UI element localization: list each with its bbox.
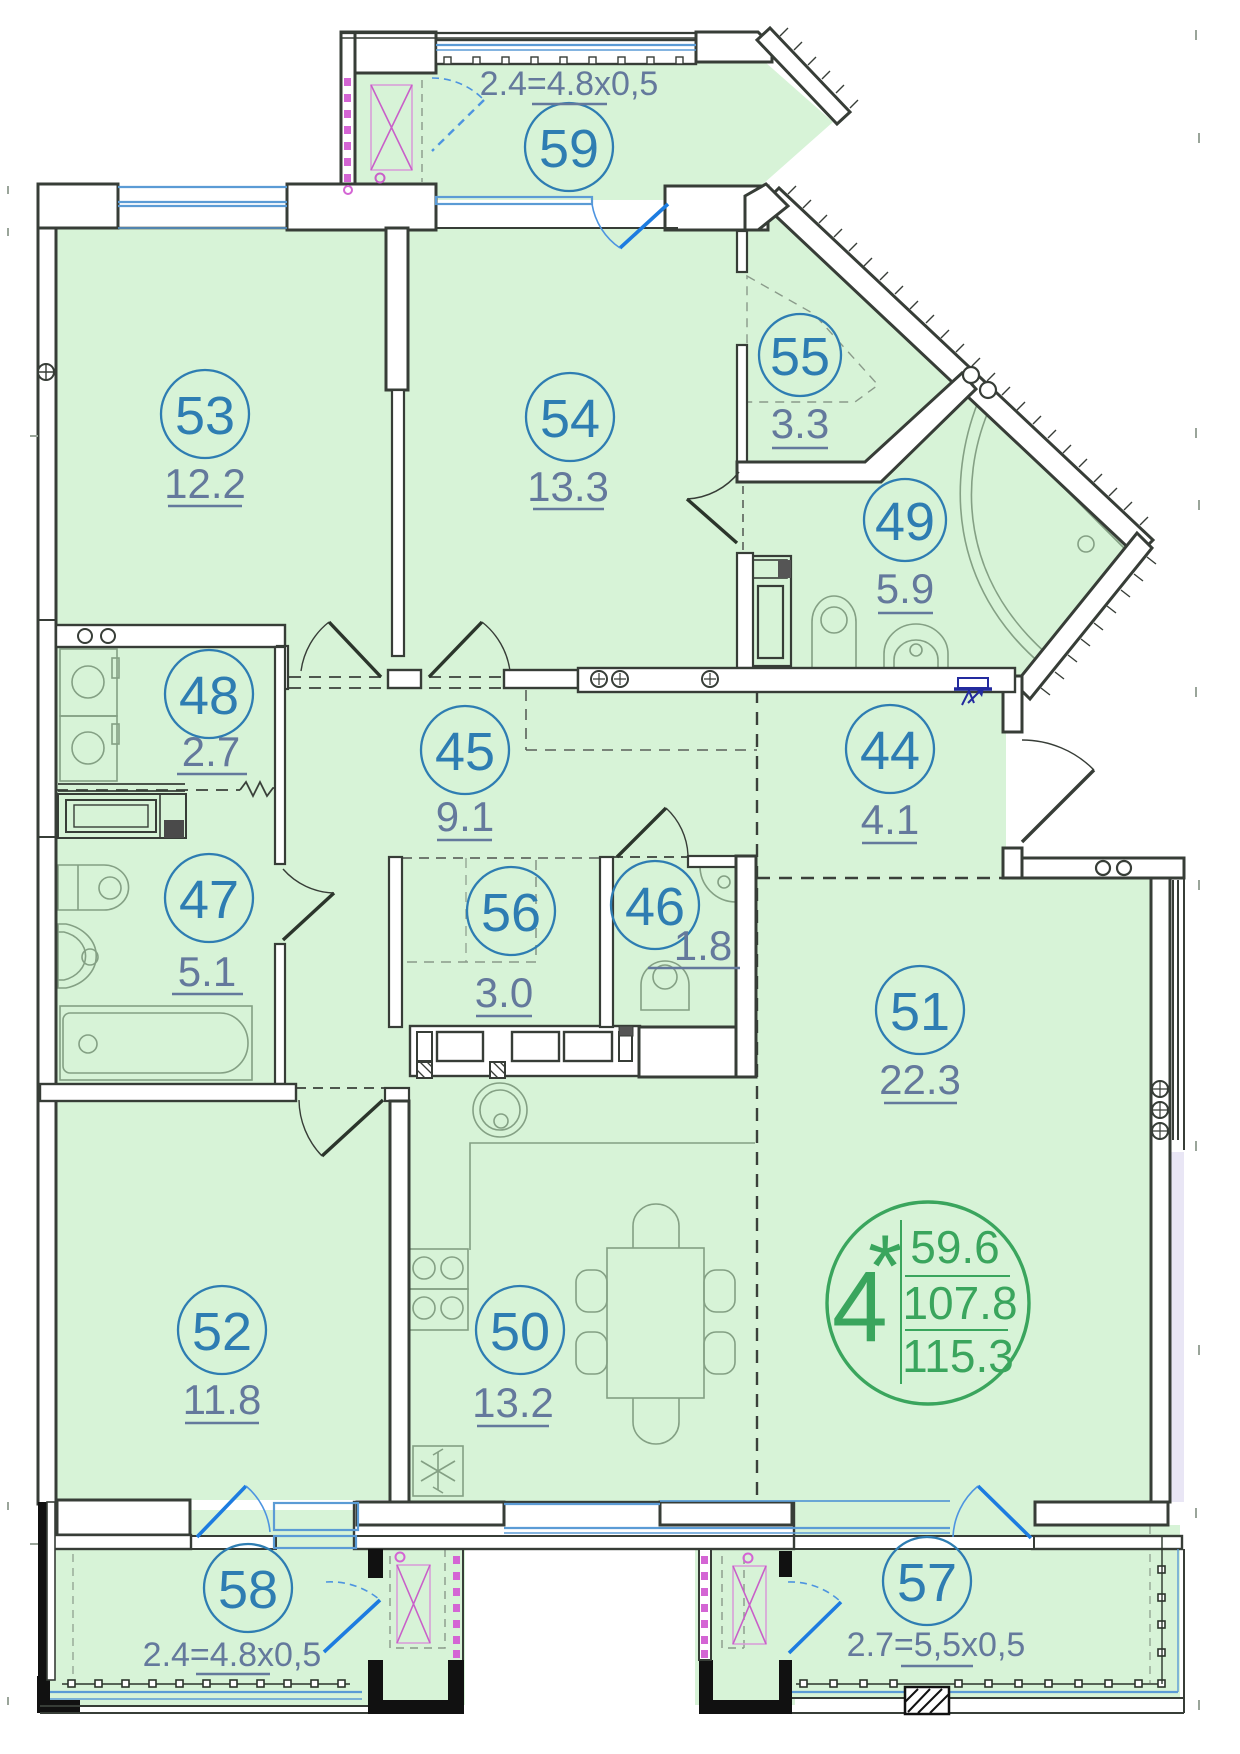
svg-text:2.4=4.8x0,5: 2.4=4.8x0,5 xyxy=(480,65,659,103)
svg-text:3.3: 3.3 xyxy=(771,400,829,447)
svg-text:11.8: 11.8 xyxy=(183,1376,262,1423)
svg-text:4.1: 4.1 xyxy=(861,796,919,843)
svg-text:5.9: 5.9 xyxy=(876,565,934,612)
svg-text:5.1: 5.1 xyxy=(178,948,236,995)
svg-text:47: 47 xyxy=(179,870,239,930)
svg-text:51: 51 xyxy=(890,982,950,1042)
svg-text:13.3: 13.3 xyxy=(527,463,609,510)
svg-text:13.2: 13.2 xyxy=(472,1379,554,1426)
svg-text:1.8: 1.8 xyxy=(674,922,732,969)
svg-text:56: 56 xyxy=(481,883,541,943)
svg-text:45: 45 xyxy=(435,722,495,782)
svg-text:59: 59 xyxy=(539,119,599,179)
svg-text:52: 52 xyxy=(192,1302,252,1362)
svg-text:53: 53 xyxy=(175,386,235,446)
svg-text:55: 55 xyxy=(770,327,830,387)
svg-text:2.4=4.8x0,5: 2.4=4.8x0,5 xyxy=(143,1636,322,1674)
svg-text:22.3: 22.3 xyxy=(879,1056,961,1103)
svg-text:107.8: 107.8 xyxy=(902,1277,1017,1329)
svg-text:58: 58 xyxy=(218,1560,278,1620)
svg-text:48: 48 xyxy=(179,666,239,726)
svg-text:54: 54 xyxy=(540,389,600,449)
svg-text:12.2: 12.2 xyxy=(164,460,246,507)
svg-text:*: * xyxy=(868,1216,902,1315)
svg-text:49: 49 xyxy=(875,492,935,552)
svg-text:2.7=5,5x0,5: 2.7=5,5x0,5 xyxy=(847,1626,1026,1664)
svg-text:3.0: 3.0 xyxy=(475,969,533,1016)
svg-text:50: 50 xyxy=(490,1302,550,1362)
svg-text:2.7: 2.7 xyxy=(182,728,240,775)
svg-text:115.3: 115.3 xyxy=(902,1330,1014,1382)
svg-text:57: 57 xyxy=(897,1553,957,1613)
svg-text:59.6: 59.6 xyxy=(910,1221,1000,1273)
svg-text:44: 44 xyxy=(860,721,920,781)
svg-text:9.1: 9.1 xyxy=(436,793,494,840)
